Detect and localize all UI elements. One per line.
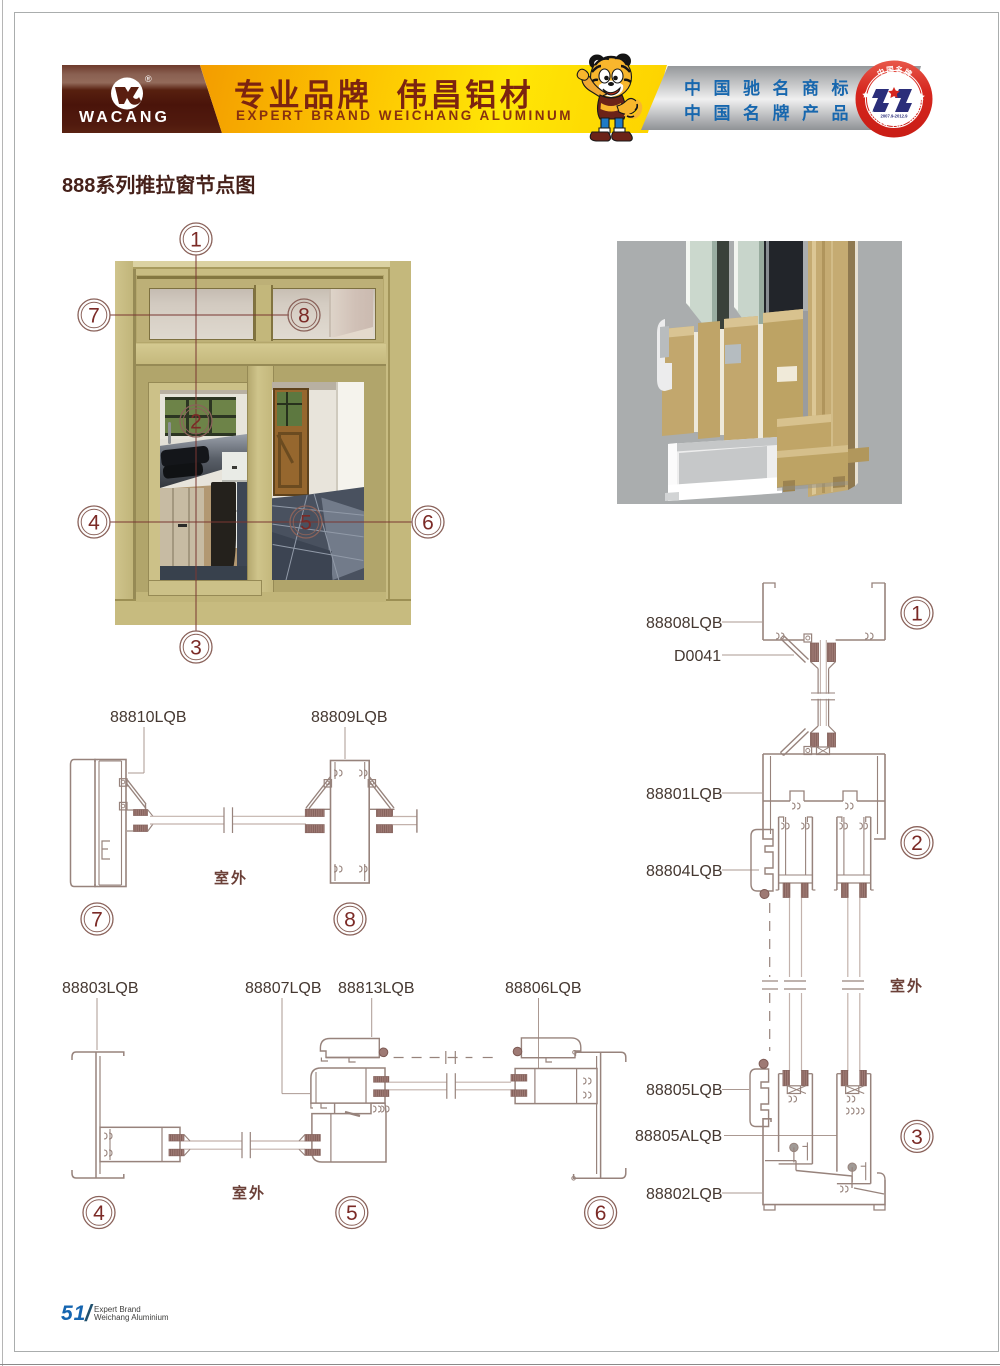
svg-text:7: 7 [88,305,100,328]
svg-text:室外: 室外 [232,1184,266,1202]
svg-text:88805ALQB: 88805ALQB [635,1128,722,1145]
svg-text:室外: 室外 [214,869,248,887]
svg-text:4: 4 [88,512,100,535]
svg-text:D0041: D0041 [674,648,721,665]
svg-text:8: 8 [344,909,356,932]
svg-text:3: 3 [190,637,202,660]
svg-text:6: 6 [595,1202,607,1225]
svg-text:5: 5 [346,1202,358,1225]
svg-text:88801LQB: 88801LQB [646,786,723,803]
svg-text:88807LQB: 88807LQB [245,980,322,997]
svg-text:8: 8 [298,305,310,328]
svg-text:88809LQB: 88809LQB [311,709,388,726]
svg-text:1: 1 [190,229,202,252]
svg-text:1: 1 [911,603,923,626]
svg-text:7: 7 [91,909,103,932]
svg-text:88805LQB: 88805LQB [646,1082,723,1099]
svg-text:88802LQB: 88802LQB [646,1186,723,1203]
svg-text:88813LQB: 88813LQB [338,980,415,997]
svg-text:88810LQB: 88810LQB [110,709,187,726]
svg-text:88804LQB: 88804LQB [646,863,723,880]
svg-text:88803LQB: 88803LQB [62,980,139,997]
svg-text:88806LQB: 88806LQB [505,980,582,997]
svg-text:2: 2 [911,832,923,855]
svg-text:2: 2 [190,411,202,434]
svg-text:3: 3 [911,1126,923,1149]
svg-text:4: 4 [93,1202,105,1225]
svg-text:室外: 室外 [890,977,924,995]
svg-text:6: 6 [422,512,434,535]
svg-text:5: 5 [300,512,312,535]
svg-text:88808LQB: 88808LQB [646,615,723,632]
